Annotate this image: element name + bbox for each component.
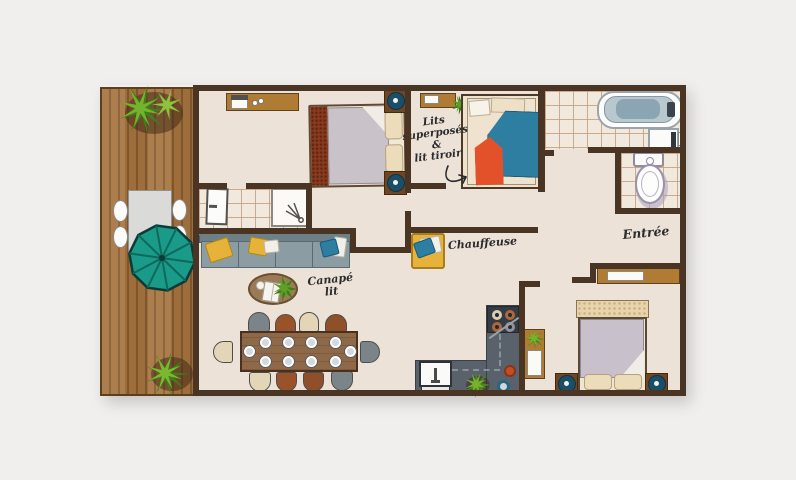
- plant: [140, 348, 200, 398]
- sofa-bed: [199, 231, 352, 269]
- burner-icon: [492, 310, 502, 320]
- wall: [572, 277, 596, 283]
- wall: [193, 85, 686, 91]
- lamp-icon: [387, 92, 405, 110]
- pot-orange: [504, 365, 516, 377]
- plate: [243, 345, 256, 358]
- armchair: [411, 233, 445, 269]
- wall: [538, 85, 545, 192]
- wall: [246, 183, 312, 189]
- wall: [680, 85, 686, 396]
- bedside-table: [384, 171, 407, 195]
- kitchen-sink: [419, 361, 452, 393]
- pillow: [468, 99, 490, 117]
- wall: [411, 227, 538, 233]
- dining-chair: [213, 341, 233, 363]
- shelf-box: [424, 95, 439, 104]
- washbasin-tap: [231, 95, 248, 100]
- tub-faucet: [667, 102, 675, 117]
- plate: [282, 355, 295, 368]
- wall: [615, 208, 686, 214]
- apartment-floor-plan: Litssuperposés &lit tiroir Entrée: [0, 0, 796, 480]
- double-bed-2: [576, 300, 649, 393]
- cooktop: [487, 306, 519, 333]
- wall: [196, 228, 356, 234]
- wall: [538, 150, 554, 156]
- wall: [405, 183, 446, 189]
- plant: [110, 86, 190, 142]
- pillow: [614, 374, 642, 390]
- plate: [305, 336, 318, 349]
- dining-chair: [248, 312, 270, 332]
- wall: [350, 247, 411, 253]
- counter-dash: [499, 334, 501, 366]
- plant: [523, 327, 547, 351]
- dining-chair: [303, 372, 324, 392]
- bathtub: [597, 91, 683, 129]
- wall: [588, 147, 686, 153]
- door: [205, 188, 228, 226]
- wall: [405, 85, 411, 193]
- pillow: [385, 144, 403, 172]
- plate: [259, 355, 272, 368]
- plate: [329, 336, 342, 349]
- shelf-knob: [258, 98, 264, 104]
- plate: [305, 355, 318, 368]
- wall: [193, 85, 199, 396]
- sink-tap: [671, 132, 676, 147]
- toilet-bowl: [635, 164, 665, 204]
- door-handle: [209, 205, 217, 208]
- sofa-cushion: [263, 239, 279, 253]
- plate: [329, 355, 342, 368]
- dining-chair: [299, 312, 319, 332]
- plate: [282, 336, 295, 349]
- plate: [259, 336, 272, 349]
- plate: [344, 345, 357, 358]
- headboard: [576, 300, 649, 318]
- plant: [271, 275, 297, 301]
- wall: [519, 281, 525, 396]
- bed-throw: [310, 107, 328, 186]
- wardrobe-door: [527, 350, 542, 376]
- bedside-table: [384, 89, 407, 113]
- wall: [590, 263, 683, 269]
- wall: [196, 183, 227, 189]
- wall: [306, 183, 312, 234]
- wall: [615, 153, 621, 211]
- console-tv: [607, 271, 644, 281]
- dining-chair: [276, 372, 297, 392]
- bunk-beds-label: Litssuperposés &lit tiroir: [400, 112, 471, 167]
- coffee-table: [248, 273, 298, 305]
- shower: [271, 188, 308, 227]
- lamp-icon: [387, 174, 405, 192]
- pillow: [584, 374, 612, 390]
- wall: [193, 390, 686, 396]
